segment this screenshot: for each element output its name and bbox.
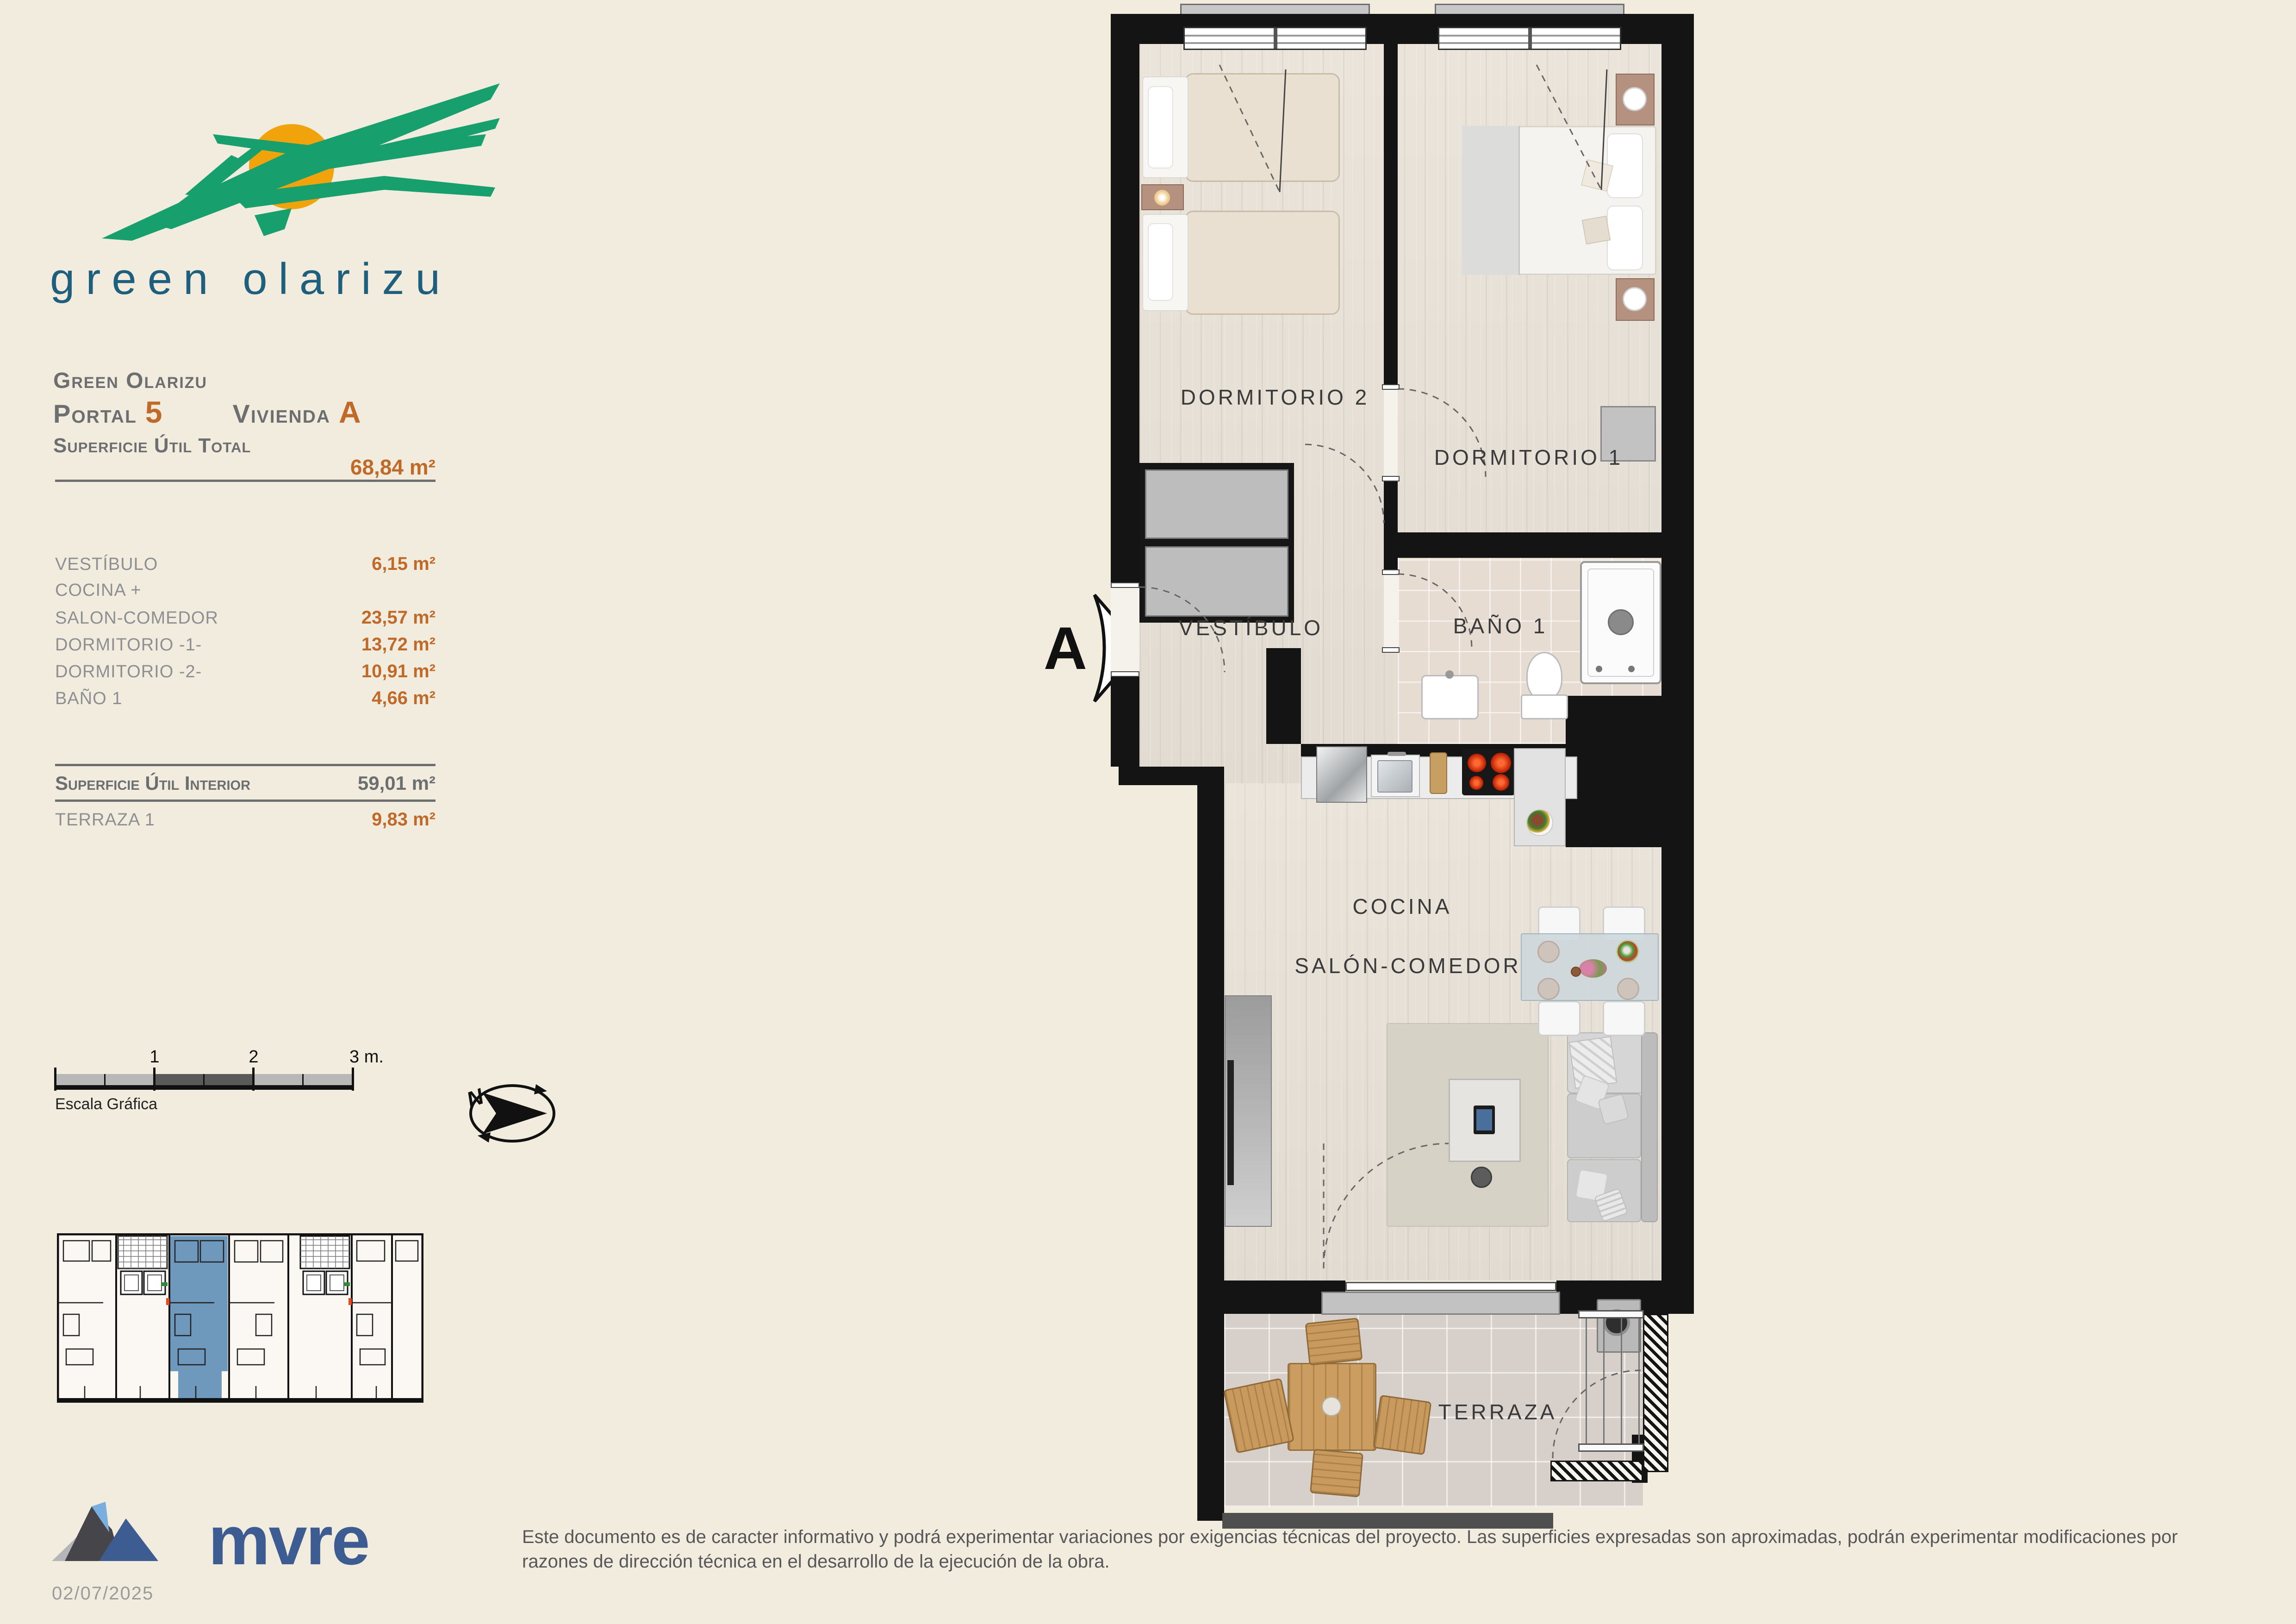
- terraza-area-row: TERRAZA 1 9,83 m²: [55, 809, 436, 836]
- keyplan-green-mark: [344, 1282, 350, 1286]
- highlighted-unit: [170, 1236, 228, 1399]
- portal-number: 5: [145, 394, 163, 430]
- room-label-bano1: BAÑO 1: [1453, 613, 1548, 638]
- keyplan-red-mark: [166, 1298, 169, 1305]
- brand-wordmark: green olarizu: [50, 254, 451, 305]
- scale-bar-segments: [55, 1074, 354, 1085]
- building-key-plan: [57, 1233, 423, 1403]
- scale-tick-3: 3 m.: [349, 1047, 384, 1067]
- total-area-label: Superficie Útil Total: [53, 434, 251, 457]
- keyplan-red-mark: [348, 1298, 352, 1305]
- room-label-dormitorio1: DORMITORIO 1: [1434, 445, 1624, 470]
- room-row-dormitorio-1: DORMITORIO -1- 13,72 m²: [55, 634, 436, 661]
- scale-tick-2: 2: [249, 1047, 258, 1067]
- total-area-value: 68,84 m²: [55, 455, 436, 480]
- section-letter: A: [1044, 618, 1087, 678]
- apartment-floor-plan: DORMITORIO 2 DORMITORIO 1 VESTÍBULO BAÑO…: [1111, 0, 1694, 1546]
- scale-tick-1: 1: [149, 1047, 159, 1067]
- room-label-cocina: COCINA: [1353, 894, 1452, 919]
- keyplan-green-mark: [162, 1282, 168, 1286]
- room-label-terraza: TERRAZA: [1438, 1399, 1557, 1424]
- portal-vivienda-line: Portal 5 Vivienda A: [53, 394, 362, 430]
- vivienda-letter: A: [339, 394, 362, 430]
- door-swing-overlay: [1111, 0, 1694, 1546]
- north-compass-icon: N: [464, 1079, 561, 1148]
- floorplan-brochure-page: green olarizu Green Olarizu Portal 5 Viv…: [0, 0, 2296, 1624]
- room-label-vestibulo: VESTÍBULO: [1179, 615, 1323, 640]
- room-area-list: VESTÍBULO 6,15 m² COCINA + SALON-COMEDOR…: [55, 554, 436, 715]
- room-row-dormitorio-2: DORMITORIO -2- 10,91 m²: [55, 661, 436, 688]
- svg-text:N: N: [464, 1084, 487, 1113]
- room-row-vestibulo: VESTÍBULO 6,15 m²: [55, 554, 436, 581]
- interior-area-row: Superficie Útil Interior 59,01 m²: [55, 772, 436, 794]
- vivienda-word: Vivienda: [233, 399, 331, 429]
- divider-line: [55, 800, 436, 802]
- mvre-wordmark: mvre: [208, 1505, 369, 1575]
- scale-caption: Escala Gráfica: [55, 1095, 157, 1113]
- portal-word: Portal: [53, 399, 137, 429]
- room-row-bano-1: BAÑO 1 4,66 m²: [55, 688, 436, 715]
- divider-line: [55, 764, 436, 766]
- project-title: Green Olarizu: [53, 368, 207, 394]
- room-row-cocina-plus: COCINA +: [55, 581, 436, 607]
- room-label-salon-comedor: SALÓN-COMEDOR: [1294, 953, 1521, 978]
- divider-line: [55, 480, 436, 482]
- room-row-salon-comedor: SALON-COMEDOR 23,57 m²: [55, 607, 436, 634]
- room-label-dormitorio2: DORMITORIO 2: [1181, 385, 1370, 410]
- mvre-logo-icon: [51, 1502, 204, 1567]
- document-date: 02/07/2025: [52, 1583, 154, 1604]
- green-olarizu-logo-icon: [32, 56, 504, 255]
